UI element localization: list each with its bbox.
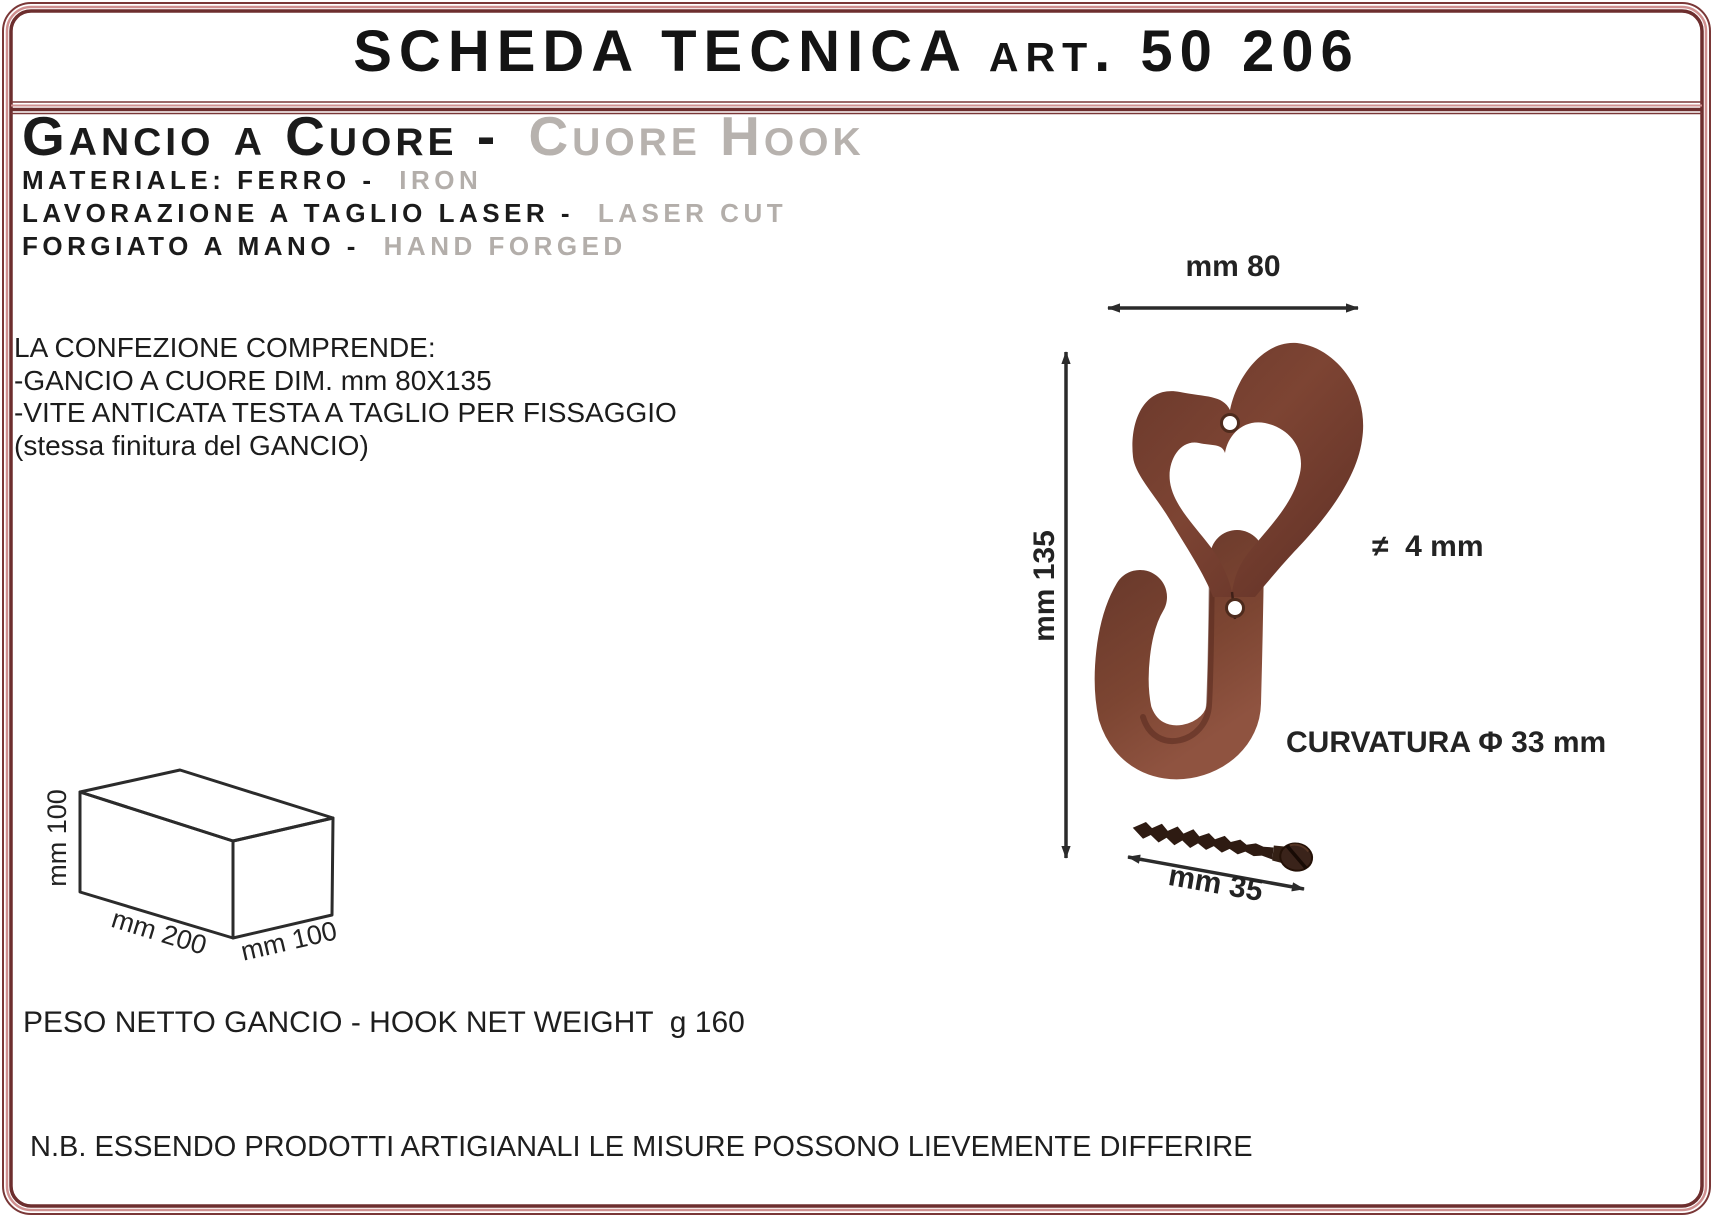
height-dimension-label: mm 135	[1028, 521, 1060, 651]
technical-sheet-page: SCHEDA TECNICA art. 50 206 Gancio a Cuor…	[0, 0, 1713, 1217]
screw-thread	[1131, 819, 1275, 863]
screw-hole-bottom	[1227, 600, 1244, 617]
product-title: Gancio a Cuore - Cuore Hook	[22, 104, 1422, 168]
thickness-label: ≠ 4 mm	[1372, 530, 1484, 564]
width-dimension-label: mm 80	[1150, 250, 1316, 284]
curvature-label: CURVATURA Φ 33 mm	[1286, 726, 1606, 760]
spec-forged-english: HAND FORGED	[384, 231, 627, 261]
package-line-3: -VITE ANTICATA TESTA A TAGLIO PER FISSAG…	[14, 397, 677, 430]
heart-plate	[1132, 343, 1363, 597]
product-title-italian: Gancio a Cuore -	[22, 105, 499, 167]
spec-material: MATERIALE: FERRO - IRON	[22, 165, 787, 198]
page-title: SCHEDA TECNICA art. 50 206	[0, 18, 1713, 85]
spec-processing: LAVORAZIONE A TAGLIO LASER - LASER CUT	[22, 198, 787, 231]
package-contents: LA CONFEZIONE COMPRENDE: -GANCIO A CUORE…	[14, 332, 677, 462]
screw-hole-top	[1222, 415, 1239, 432]
spec-forged: FORGIATO A MANO - HAND FORGED	[22, 231, 787, 264]
package-line-4: (stessa finitura del GANCIO)	[14, 430, 677, 463]
net-weight-text: PESO NETTO GANCIO - HOOK NET WEIGHT g 16…	[23, 1006, 745, 1040]
spec-processing-english: LASER CUT	[598, 198, 787, 228]
product-title-english: Cuore Hook	[528, 105, 864, 167]
product-specs: MATERIALE: FERRO - IRON LAVORAZIONE A TA…	[22, 165, 787, 264]
spec-material-italian: MATERIALE: FERRO -	[22, 165, 376, 195]
box-height-label: mm 100	[42, 783, 72, 893]
package-line-2: -GANCIO A CUORE DIM. mm 80X135	[14, 365, 677, 398]
spec-material-english: IRON	[399, 165, 482, 195]
handmade-note-text: N.B. ESSENDO PRODOTTI ARTIGIANALI LE MIS…	[30, 1131, 1253, 1164]
spec-forged-italian: FORGIATO A MANO -	[22, 231, 360, 261]
package-line-1: LA CONFEZIONE COMPRENDE:	[14, 332, 677, 365]
spec-processing-italian: LAVORAZIONE A TAGLIO LASER -	[22, 198, 574, 228]
